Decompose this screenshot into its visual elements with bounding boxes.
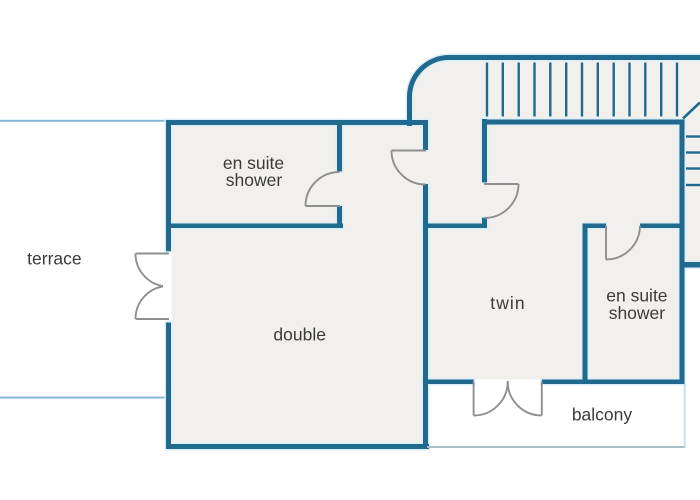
svg-text:shower: shower [609,303,666,323]
svg-text:terrace: terrace [27,248,81,268]
svg-text:double: double [273,324,326,344]
svg-text:shower: shower [226,170,283,190]
svg-text:twin: twin [490,293,526,313]
svg-text:balcony: balcony [572,405,633,425]
